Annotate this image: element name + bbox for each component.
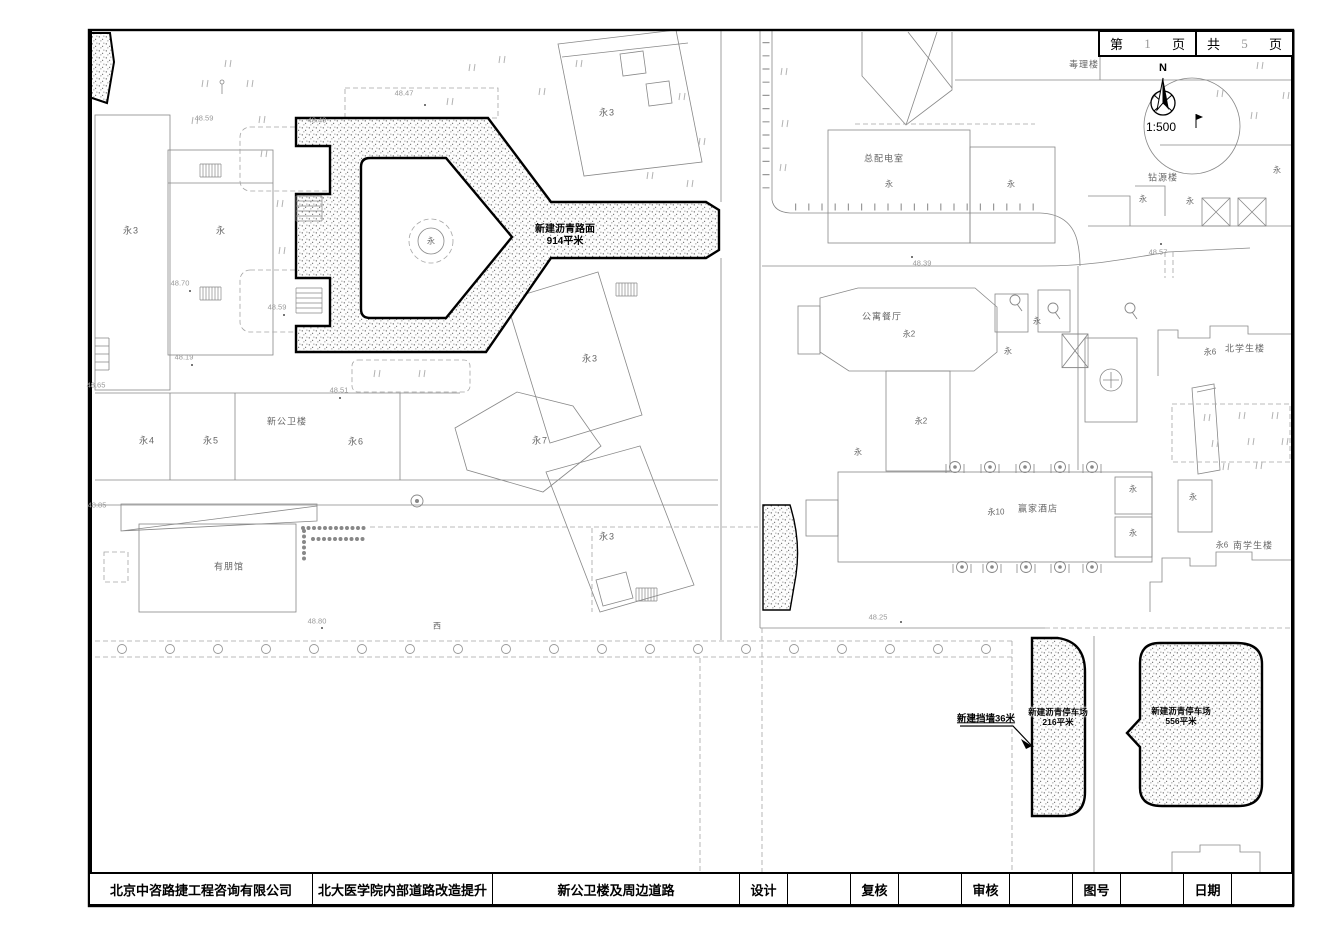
elevation-label: 48.80: [308, 617, 327, 626]
titleblock-drawing-title: 新公卫楼及周边道路: [492, 874, 739, 904]
titleblock-field-review-label: 审核: [961, 874, 1009, 904]
building-label: 永: [1004, 346, 1012, 357]
building-label-youpeng-hall: 有朋馆: [214, 560, 244, 573]
annotation-lot-large-line2: 556平米: [1151, 716, 1211, 726]
total-unit: 页: [1269, 34, 1282, 53]
titleblock-field-drawingno-label: 图号: [1072, 874, 1120, 904]
elevation-label: 48.70: [171, 279, 190, 288]
titleblock-field-date-label: 日期: [1183, 874, 1231, 904]
tree-row: [118, 645, 991, 654]
building-label: 永: [1033, 316, 1041, 327]
fence-chain: [303, 528, 368, 562]
building-label-new-public-health: 新公卫楼: [267, 415, 307, 428]
building-label: 永: [1139, 194, 1147, 205]
lamp-icon: [1051, 562, 1069, 574]
stairs-icon: [200, 287, 221, 300]
elevation-label: 48.49: [308, 116, 327, 125]
building-label: 永6: [1204, 347, 1216, 358]
lamp-icon: [1048, 303, 1060, 319]
titleblock-field-drawingno-value: [1120, 874, 1183, 904]
page-unit: 页: [1172, 34, 1185, 53]
total-number: 5: [1241, 36, 1248, 52]
building-label: 永3: [599, 530, 615, 543]
road-char-label: 西: [433, 621, 441, 632]
building-label-apartment-restaurant: 公寓餐厅: [862, 310, 902, 323]
elevation-label: 48.85: [88, 501, 107, 510]
stairs-icon: [616, 283, 637, 296]
buildings-linework: [95, 30, 1294, 872]
building-label: 永3: [599, 106, 615, 119]
annotation-lot-small-line1: 新建沥青停车场: [1028, 707, 1088, 717]
annotation-new-road-line1: 新建沥青路面: [535, 224, 595, 236]
structure-icon: [1202, 198, 1230, 226]
building-label-north-student: 北学生楼: [1225, 342, 1265, 355]
building-label: 永: [1129, 484, 1137, 495]
building-label-zuanyuan: 钻源楼: [1148, 171, 1178, 184]
building-label: 永: [1007, 179, 1015, 190]
building-label: 永: [216, 224, 226, 237]
site-plan-linework: [0, 0, 1324, 936]
building-label: 永: [1273, 165, 1281, 176]
building-label: 永5: [203, 434, 219, 447]
leader-line: [960, 726, 1031, 745]
lamp-icon: [1083, 562, 1101, 574]
asphalt-island: [763, 505, 798, 610]
frame-right-band: [1291, 30, 1295, 906]
building-label-south-student: 南学生楼: [1233, 539, 1273, 552]
lamp-icon: [1016, 462, 1034, 474]
titleblock-field-check-label: 复核: [850, 874, 898, 904]
building-label: 永10: [988, 507, 1005, 518]
title-block: 北京中咨路捷工程咨询有限公司 北大医学院内部道路改造提升 新公卫楼及周边道路 设…: [88, 872, 1294, 906]
titleblock-field-date-value: [1231, 874, 1292, 904]
page-prefix: 第: [1110, 34, 1123, 53]
total-prefix: 共: [1207, 34, 1220, 53]
building-label: 永: [885, 179, 893, 190]
elevation-label: 48.19: [175, 353, 194, 362]
lamp-icon: [953, 562, 971, 574]
building-label: 永4: [139, 434, 155, 447]
elevation-label: 48.51: [330, 386, 349, 395]
titleblock-field-design-value: [787, 874, 850, 904]
fountain-label: 永: [427, 236, 435, 247]
elevation-label: 48.65: [87, 381, 106, 390]
building-label: 永3: [582, 352, 598, 365]
page-number: 1: [1144, 36, 1151, 52]
lamp-icon: [1017, 562, 1035, 574]
annotation-new-road-line2: 914平米: [535, 236, 595, 248]
building-label: 永: [1186, 196, 1194, 207]
elevation-label: 48.57: [1149, 248, 1168, 257]
elevation-label: 48.39: [913, 259, 932, 268]
drawing-frame: [89, 30, 1293, 906]
elevation-label: 48.59: [268, 303, 287, 312]
titleblock-field-check-value: [898, 874, 961, 904]
annotation-lot-small: 新建沥青停车场 216平米: [1028, 707, 1088, 727]
building-label: 永: [1189, 492, 1197, 503]
building-label-power-room: 总配电室: [864, 152, 904, 165]
elevation-label: 48.47: [395, 89, 414, 98]
lamp-icon: [1051, 462, 1069, 474]
elevation-label: 48.59: [195, 114, 214, 123]
annotation-retaining-wall: 新建挡墙36米: [957, 713, 1015, 724]
lamp-icon: [1125, 303, 1137, 319]
building-label: 永2: [903, 329, 915, 340]
scale-label: 1:500: [1146, 120, 1176, 134]
building-label: 永2: [915, 416, 927, 427]
building-label: 永6: [1216, 540, 1228, 551]
sheet-page-cell: 第 1 页: [1100, 32, 1195, 55]
titleblock-project: 北大医学院内部道路改造提升: [312, 874, 492, 904]
structure-icon: [1238, 198, 1266, 226]
asphalt-patch-top-left: [89, 33, 114, 103]
elevation-label: 48.25: [869, 613, 888, 622]
building-label-toxicology: 毒理楼: [1069, 58, 1099, 71]
building-label: 永7: [532, 434, 548, 447]
annotation-new-road: 新建沥青路面 914平米: [535, 224, 595, 248]
lamp-icon: [983, 562, 1001, 574]
drawing-sheet: 永3 永 永 永3 永3 永7 永3 永4 永5 新公卫楼 永6 有朋馆 毒理楼…: [0, 0, 1324, 936]
titleblock-field-design-label: 设计: [739, 874, 787, 904]
stairs-icon: [200, 164, 221, 177]
building-label: 永3: [123, 224, 139, 237]
sheet-number-box: 第 1 页 共 5 页: [1098, 30, 1294, 57]
new-asphalt-ring-road: [296, 118, 719, 352]
annotation-lot-large: 新建沥青停车场 556平米: [1151, 706, 1211, 726]
building-label: 永: [854, 447, 862, 458]
building-label: 永6: [348, 435, 364, 448]
annotation-lot-small-line2: 216平米: [1028, 717, 1088, 727]
sheet-total-cell: 共 5 页: [1195, 32, 1292, 55]
north-label: N: [1159, 62, 1167, 74]
structure-icon: [1062, 334, 1088, 368]
building-label-winner-hotel: 赢家酒店: [1018, 502, 1058, 515]
lamp-icon: [981, 462, 999, 474]
titleblock-field-review-value: [1009, 874, 1072, 904]
annotation-lot-large-line1: 新建沥青停车场: [1151, 706, 1211, 716]
lamp-icon: [1010, 295, 1022, 311]
frame-left-band: [88, 30, 92, 906]
building-label: 永: [1129, 528, 1137, 539]
titleblock-company: 北京中咨路捷工程咨询有限公司: [90, 874, 312, 904]
stairs-icon: [296, 288, 322, 313]
lamp-icon: [1083, 462, 1101, 474]
